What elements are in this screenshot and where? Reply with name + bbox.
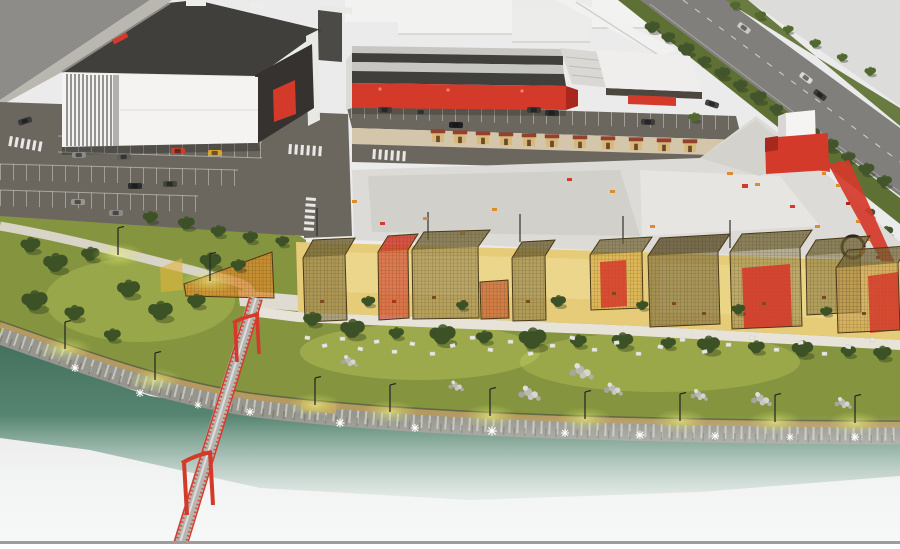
pavilion	[648, 234, 730, 327]
pavilion	[412, 230, 490, 319]
kiosk	[629, 137, 643, 150]
red-facade-end	[566, 86, 578, 110]
west-end-cap	[346, 53, 352, 110]
pavilion	[836, 246, 900, 333]
masterplan-render	[0, 0, 900, 549]
lawn-lightwash	[300, 324, 540, 380]
render-fade	[0, 415, 900, 549]
bottom-border	[0, 541, 900, 544]
kiosk	[522, 133, 536, 146]
bottom-margin	[0, 544, 900, 549]
canopy-roof	[596, 50, 702, 92]
kiosk	[453, 130, 467, 143]
facade-light	[520, 89, 523, 92]
facade-light	[446, 88, 449, 91]
kiosk	[601, 136, 615, 149]
kiosk	[431, 129, 445, 142]
connector-road	[300, 112, 352, 238]
kiosk	[499, 132, 513, 145]
louver-end-panel	[113, 75, 119, 146]
context-box-3	[512, 8, 590, 42]
red-facade	[352, 83, 566, 110]
context-box-2	[398, 0, 512, 34]
kiosk	[657, 138, 671, 151]
context-box-1	[345, 0, 398, 22]
plaza-panel-1	[368, 170, 640, 236]
kiosk	[683, 139, 697, 152]
roof-vent	[250, 3, 264, 9]
facade-light	[378, 87, 381, 90]
kiosk	[573, 135, 587, 148]
small-building-dark	[318, 10, 342, 62]
pavilion	[590, 237, 652, 310]
kiosk	[545, 134, 559, 147]
render-canvas	[0, 0, 900, 549]
roof-vent	[186, 0, 206, 6]
kiosk	[476, 131, 490, 144]
pavilion	[480, 280, 509, 319]
